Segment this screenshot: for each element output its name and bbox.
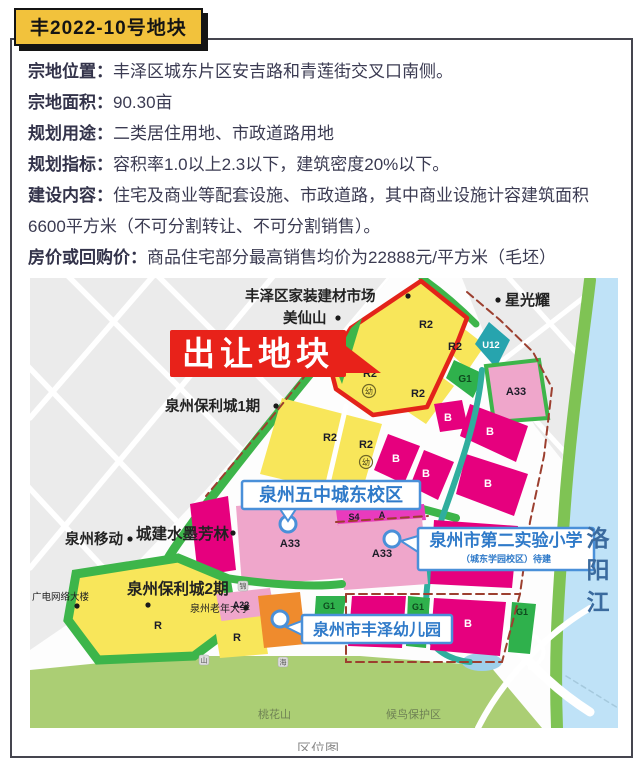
info-row-location: 宗地位置：丰泽区城东片区安吉路和青莲街交叉口南侧。 bbox=[28, 56, 605, 87]
info-value: 商品住宅部分最高销售均价为22888元/平方米（毛坯） bbox=[147, 248, 556, 267]
info-label: 宗地面积： bbox=[28, 93, 113, 112]
poi-label: 泉州保利城2期 bbox=[127, 579, 229, 598]
road-name-badge-label: 海 bbox=[280, 658, 287, 667]
facility-marker bbox=[384, 531, 400, 547]
parcel-label: B bbox=[392, 453, 400, 465]
info-value: 容积率1.0以上2.3以下，建筑密度20%以下。 bbox=[113, 155, 449, 174]
parcel-label: A bbox=[379, 510, 386, 520]
info-value: 住宅及商业等配套设施、市政道路，其中商业设施计容建筑面积6600平方米（不可分割… bbox=[28, 186, 589, 236]
parcel-label: A33 bbox=[506, 386, 526, 398]
info-value: 二类居住用地、市政道路用地 bbox=[113, 124, 334, 143]
parcel-label: B bbox=[486, 426, 494, 438]
info-row-index: 规划指标：容积率1.0以上2.3以下，建筑密度20%以下。 bbox=[28, 149, 605, 180]
parcel-label: A33 bbox=[372, 548, 392, 560]
parcel-label: B bbox=[422, 468, 430, 480]
parcel-label: B bbox=[484, 478, 492, 490]
location-map-svg: 丰泽区家装建材市场美仙山星光耀泉州保利城1期泉州移动城建水墨芳林广电网络大楼泉州… bbox=[30, 278, 618, 728]
kindergarten-icon-char: 幼 bbox=[365, 386, 373, 396]
poi-dot bbox=[243, 605, 248, 610]
parcel-label: R bbox=[154, 620, 162, 632]
facility-banner-sublabel: （城东学园校区）待建 bbox=[461, 553, 552, 564]
poi-label: 城建水墨芳林 bbox=[136, 524, 230, 543]
info-label: 规划用途： bbox=[28, 124, 113, 143]
poi-dot bbox=[145, 602, 150, 607]
poi-label: 丰泽区家装建材市场 bbox=[245, 287, 376, 305]
poi-label: 泉州保利城1期 bbox=[165, 397, 260, 415]
poi-dot bbox=[273, 403, 278, 408]
facility-banner-label: 泉州市丰泽幼儿园 bbox=[313, 620, 441, 639]
poi-dot bbox=[74, 603, 79, 608]
river-label: 洛 bbox=[587, 525, 611, 551]
parcel-label: R2 bbox=[419, 319, 433, 331]
parcel-label: A33 bbox=[280, 538, 300, 550]
kindergarten-icon-char: 幼 bbox=[362, 457, 370, 467]
parcel-label: B bbox=[444, 412, 452, 424]
parcel-label: R2 bbox=[323, 432, 337, 444]
poi-dot bbox=[230, 530, 235, 535]
info-label: 建设内容： bbox=[28, 186, 113, 205]
river-label: 阳 bbox=[587, 557, 610, 583]
info-value: 丰泽区城东片区安吉路和青莲街交叉口南侧。 bbox=[113, 62, 453, 81]
info-row-price: 房价或回购价：商品住宅部分最高销售均价为22888元/平方米（毛坯） bbox=[28, 242, 605, 273]
parcel-label: G1 bbox=[412, 602, 424, 612]
facility-marker bbox=[272, 611, 288, 627]
poi-label: 泉州移动 bbox=[65, 530, 123, 548]
sale-callout-label: 出让地块 bbox=[182, 335, 334, 372]
info-row-area: 宗地面积：90.30亩 bbox=[28, 87, 605, 118]
map-caption: 区位图 bbox=[297, 739, 339, 751]
info-label: 房价或回购价： bbox=[28, 248, 147, 267]
location-map: 丰泽区家装建材市场美仙山星光耀泉州保利城1期泉州移动城建水墨芳林广电网络大楼泉州… bbox=[30, 278, 618, 728]
facility-banner-label: 泉州五中城东校区 bbox=[259, 484, 403, 505]
parcel-label: G1 bbox=[458, 374, 472, 385]
poi-label: 美仙山 bbox=[283, 309, 327, 327]
parcel-label: S4 bbox=[348, 512, 359, 522]
parcel-label: R2 bbox=[448, 341, 462, 353]
road-name-badge-label: 锦 bbox=[240, 582, 247, 591]
parcel-label: R bbox=[233, 632, 241, 644]
poi-dot bbox=[405, 293, 410, 298]
info-row-construction: 建设内容：住宅及商业等配套设施、市政道路，其中商业设施计容建筑面积6600平方米… bbox=[28, 180, 605, 242]
info-row-usage: 规划用途：二类居住用地、市政道路用地 bbox=[28, 118, 605, 149]
poi-dot bbox=[495, 297, 500, 302]
river-label: 江 bbox=[587, 589, 610, 615]
parcel-id-badge: 丰2022-10号地块 bbox=[14, 8, 203, 46]
road-name-badge-label: 山 bbox=[201, 656, 208, 665]
poi-label: 候鸟保护区 bbox=[386, 707, 441, 721]
info-value: 90.30亩 bbox=[113, 93, 173, 112]
poi-dot bbox=[127, 536, 132, 541]
poi-label: 星光耀 bbox=[505, 291, 550, 309]
poi-label: 广电网络大楼 bbox=[32, 591, 90, 603]
parcel-label: R2 bbox=[411, 388, 425, 400]
parcel-label: G1 bbox=[516, 607, 528, 617]
parcel-label: G1 bbox=[323, 601, 335, 611]
poi-label: 桃花山 bbox=[258, 707, 291, 721]
poi-dot bbox=[335, 315, 340, 320]
parcel-label: U12 bbox=[482, 340, 499, 351]
info-label: 规划指标： bbox=[28, 155, 113, 174]
facility-banner-label: 泉州市第二实验小学 bbox=[429, 530, 583, 550]
parcel-label: R2 bbox=[359, 439, 373, 451]
parcel-label: B bbox=[464, 618, 472, 630]
info-label: 宗地位置： bbox=[28, 62, 113, 81]
parcel-r-small bbox=[214, 616, 268, 658]
parcel-info: 宗地位置：丰泽区城东片区安吉路和青莲街交叉口南侧。 宗地面积：90.30亩 规划… bbox=[10, 40, 625, 273]
